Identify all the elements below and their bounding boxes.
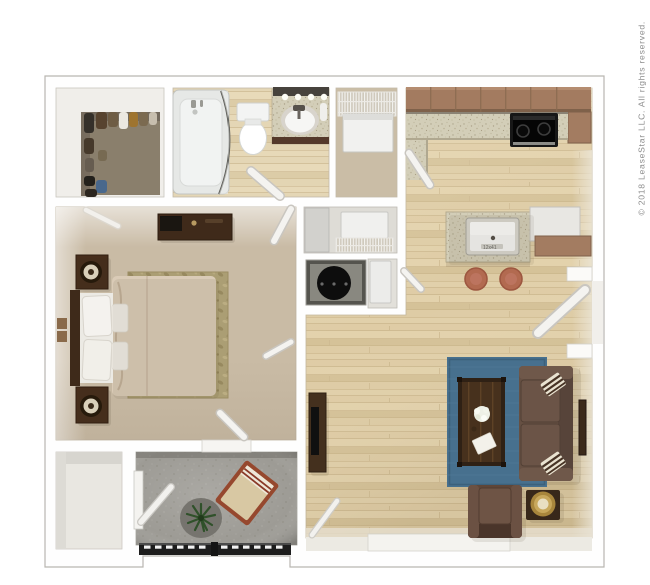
svg-text:© 2018 LeaseStar LLC. All righ: © 2018 LeaseStar LLC. All rights reserve… [637, 21, 647, 216]
